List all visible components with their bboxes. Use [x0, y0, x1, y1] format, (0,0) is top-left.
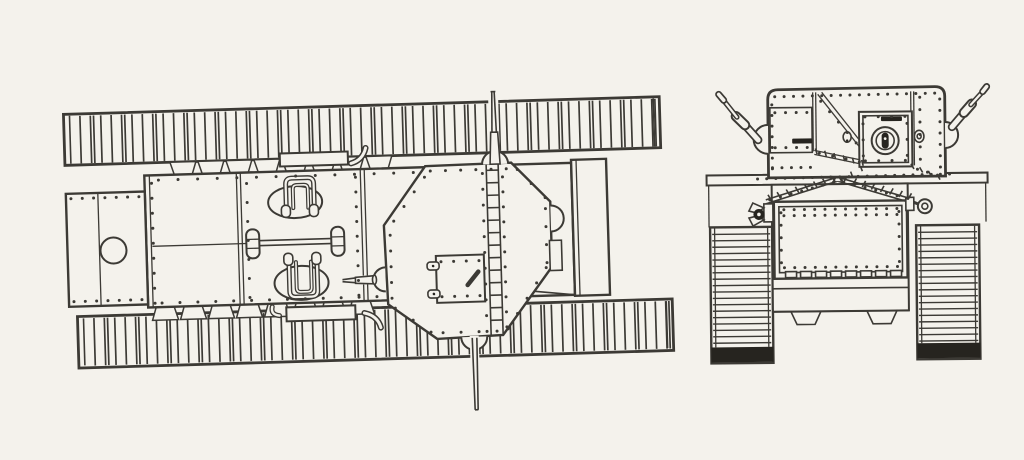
track-link — [713, 336, 771, 337]
track-link — [713, 317, 771, 318]
track-link — [919, 308, 978, 309]
handle-foot — [309, 204, 318, 216]
track-link — [919, 283, 978, 284]
track-link — [919, 321, 978, 322]
track-guard-tab — [170, 161, 196, 174]
cab-roof-door — [436, 254, 485, 302]
panel-hinge-tab — [786, 272, 797, 278]
left-face-seam — [813, 92, 814, 151]
track-link — [918, 257, 977, 258]
right-sponson-gun — [945, 87, 988, 148]
mg-gun-slot — [882, 133, 889, 149]
track-link — [919, 296, 978, 297]
track-link — [713, 298, 771, 299]
handle-foot — [312, 252, 321, 264]
panel-hinge-tab — [861, 271, 872, 277]
right-face-seam — [914, 91, 915, 165]
left-track-ground-shadow — [711, 347, 773, 363]
track-guard-tab — [180, 306, 206, 320]
track-link — [713, 304, 771, 305]
track-link — [919, 334, 978, 335]
track-link — [919, 302, 978, 303]
deck-vent-top — [280, 151, 348, 166]
front-lower-hull — [772, 183, 909, 324]
front-left-track — [710, 227, 773, 364]
track-link — [712, 253, 770, 254]
track-link — [712, 266, 770, 267]
handle-foot — [281, 205, 290, 217]
track-link — [712, 259, 770, 260]
left-vision-flap — [770, 107, 812, 152]
scanned-tank-drawing-page — [0, 0, 1024, 460]
track-link — [713, 291, 771, 292]
track-link — [918, 264, 977, 265]
track-link — [713, 285, 771, 286]
track-link — [713, 279, 771, 280]
track-link — [918, 238, 977, 239]
rear-plate-port — [100, 237, 127, 264]
track-link — [919, 340, 978, 341]
deck-vent-bottom — [286, 305, 355, 321]
panel-hinge-tab — [891, 270, 902, 276]
eye-ring-hole — [922, 203, 928, 209]
mg-collar-rear — [372, 275, 376, 284]
track-link — [919, 289, 978, 290]
track-guard-tab — [366, 156, 392, 169]
track-link — [713, 330, 771, 331]
plan-view — [63, 86, 675, 423]
track-guard-tab — [254, 159, 280, 172]
front-cab — [768, 87, 946, 178]
track-link — [918, 244, 977, 245]
track-link — [919, 270, 978, 271]
track-link — [713, 343, 771, 344]
panel-hinge-tab — [801, 271, 812, 277]
handle-foot — [284, 253, 293, 265]
track-guard-tab — [236, 304, 262, 318]
track-guard-tab — [208, 305, 234, 319]
panel-hinge-tab — [816, 271, 827, 277]
track-link — [712, 234, 770, 235]
right-track-ground-shadow — [917, 343, 980, 359]
axle-mount-left — [246, 229, 260, 258]
track-guard-tab — [198, 161, 224, 174]
track-link — [919, 315, 978, 316]
track-link — [918, 251, 977, 252]
rear-hull-plate — [66, 192, 148, 307]
mg-barrel-sleeve-top — [489, 132, 500, 164]
left-vision-slit — [792, 138, 812, 143]
left-sponson-gun — [719, 94, 769, 155]
front-right-track — [916, 225, 980, 360]
track-guard-tab — [152, 307, 178, 321]
front-view — [706, 86, 990, 363]
track-link — [712, 240, 770, 241]
track-link — [713, 311, 771, 312]
panel-hinge-tab — [831, 271, 842, 277]
panel-hinge-tab — [846, 271, 857, 277]
track-link — [919, 276, 978, 277]
left-idler-bracket — [749, 203, 773, 226]
track-link — [918, 232, 977, 233]
panel-hinge-tab — [876, 271, 887, 277]
right-towing-eye — [906, 197, 932, 213]
left-face-seam — [816, 92, 817, 151]
vision-port-front — [549, 240, 562, 270]
track-link — [712, 247, 770, 248]
front-access-panel-inner — [779, 205, 903, 272]
bracket-base — [764, 204, 773, 222]
track-link — [713, 323, 771, 324]
tank-two-view-technical-drawing — [0, 0, 1024, 460]
track-guard-tab — [226, 160, 252, 173]
track-link — [919, 328, 978, 329]
track-link — [713, 272, 771, 273]
axle-mount-right — [331, 227, 345, 256]
